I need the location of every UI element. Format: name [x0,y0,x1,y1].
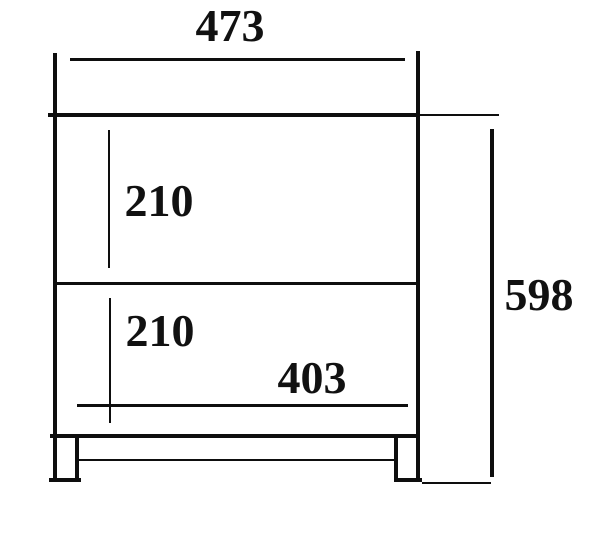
technical-drawing-canvas: 473 210 210 403 598 [0,0,601,536]
cabinet-top-edge-line [48,113,420,117]
dimension-line-overall-height [490,129,494,477]
dimension-line-inner-width [77,404,408,407]
dimension-label-bottom-drawer-height: 210 [126,308,195,354]
dimension-label-overall-width: 473 [196,3,265,49]
left-leg-bottom-line [49,478,81,482]
extension-line-overall-height-top [420,114,499,116]
dimension-line-overall-width [70,58,405,61]
right-leg-inner-side-line [394,436,398,481]
dimension-label-inner-width: 403 [278,355,347,401]
dimension-label-overall-height: 598 [505,272,574,318]
left-leg-inner-side-line [75,436,79,481]
kick-rail-line [79,459,396,461]
dimension-label-top-drawer-height: 210 [125,178,194,224]
drawer-divider-line [53,282,420,285]
right-leg-bottom-line [394,478,422,482]
extension-line-overall-height-bottom [422,482,491,484]
cabinet-bottom-edge-line [50,434,420,438]
cabinet-left-side-line [53,53,57,482]
dimension-line-top-drawer-height [108,130,110,268]
